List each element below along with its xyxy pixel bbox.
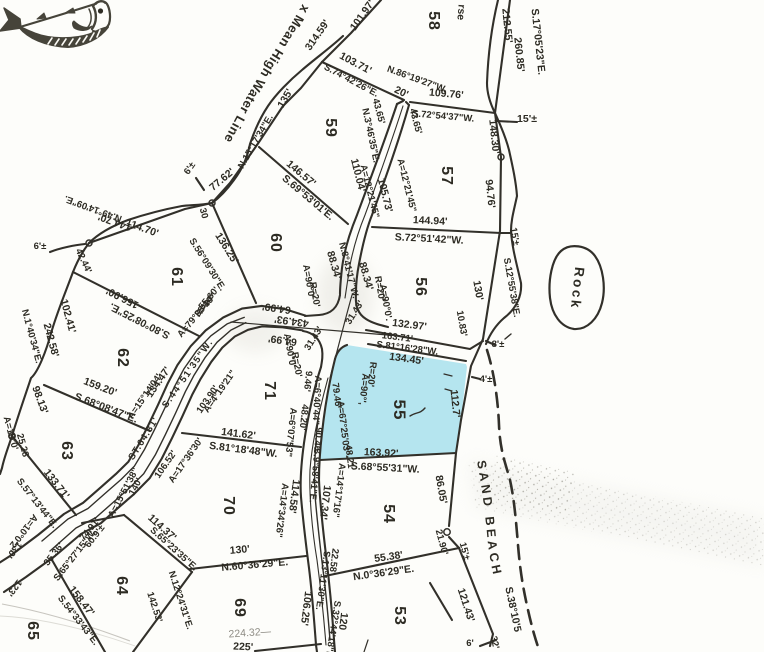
svg-text:163.92': 163.92' (364, 446, 399, 460)
svg-text:6'±: 6'± (34, 241, 47, 252)
svg-text:8'±: 8'± (492, 339, 505, 350)
svg-text:rse: rse (454, 4, 467, 21)
svg-text:65: 65 (24, 621, 41, 641)
svg-text:130': 130' (229, 543, 250, 557)
svg-text:69: 69 (231, 598, 248, 618)
svg-text:144.94': 144.94' (413, 214, 448, 228)
svg-text:63: 63 (58, 441, 75, 461)
svg-text:57: 57 (438, 166, 455, 186)
svg-text:6': 6' (466, 638, 474, 649)
svg-text:61: 61 (168, 267, 185, 287)
svg-text:15'±: 15'± (517, 113, 537, 125)
svg-text:64: 64 (113, 576, 130, 596)
svg-text:4'±: 4'± (480, 374, 493, 385)
svg-text:58: 58 (425, 11, 442, 31)
svg-text:62: 62 (114, 348, 131, 368)
svg-text:59: 59 (322, 118, 339, 138)
svg-text:53: 53 (391, 606, 408, 626)
svg-text:55: 55 (390, 400, 409, 421)
svg-text:225': 225' (233, 640, 254, 652)
svg-text:71: 71 (261, 381, 278, 401)
svg-text:70: 70 (220, 496, 237, 516)
svg-text:120: 120 (336, 612, 350, 631)
svg-text:60: 60 (267, 233, 284, 253)
svg-text:56: 56 (412, 277, 429, 297)
svg-text:54: 54 (380, 504, 397, 524)
